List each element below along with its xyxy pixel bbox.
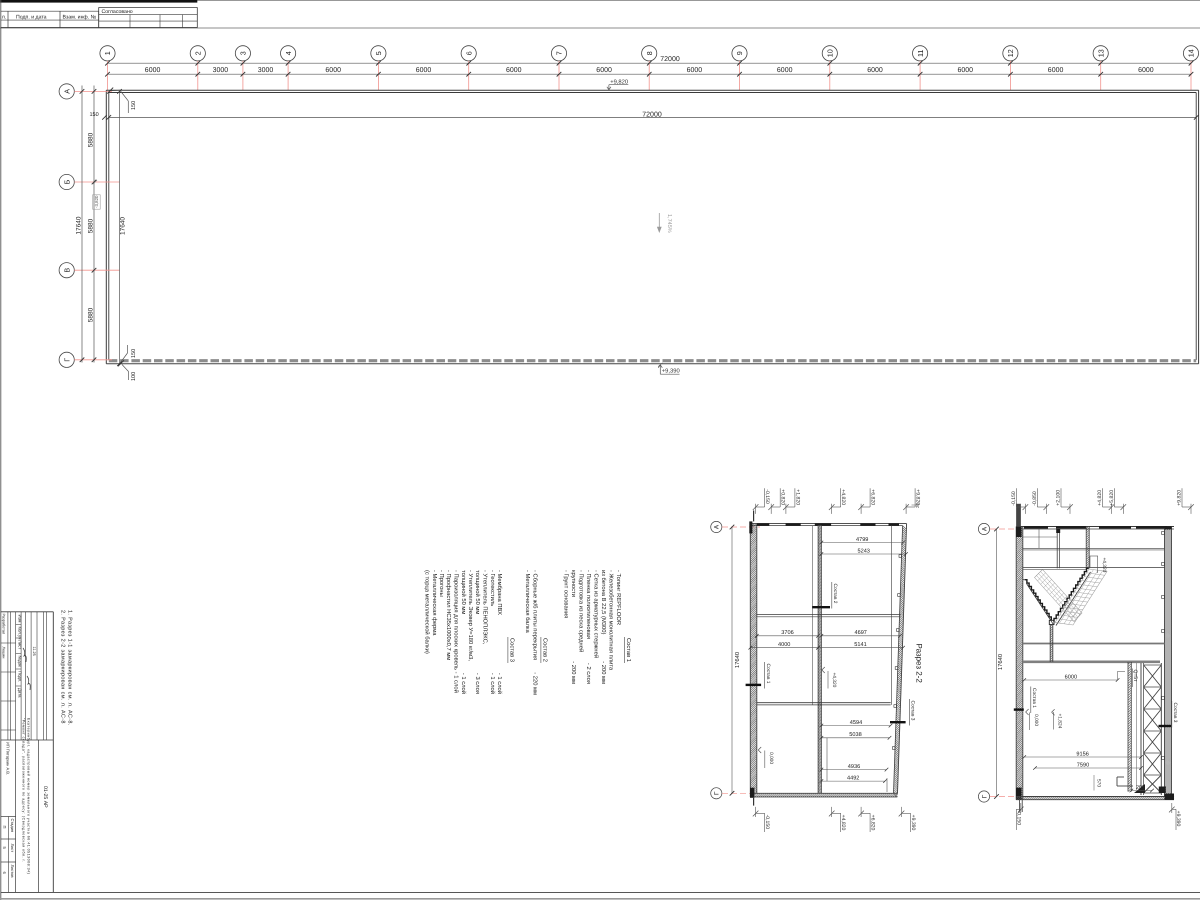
svg-text:17640: 17640 [997,654,1004,670]
svg-text:20: 20 [915,503,920,508]
svg-text:"Ремонт склада", расположенног: "Ремонт склада", расположенного по адрес… [22,718,26,862]
svg-text:0,000: 0,000 [768,752,774,764]
svg-text:3000: 3000 [258,67,274,74]
svg-text:+4,320: +4,320 [1101,558,1107,573]
svg-text:Состав 3: Состав 3 [509,638,516,662]
svg-text:Разрез 2-2: Разрез 2-2 [915,644,924,684]
svg-text:17640: 17640 [76,216,83,234]
svg-text:1. Разрез 1-1 замаркирован см.: 1. Разрез 1-1 замаркирован см. л. АС-8. [67,610,73,726]
svg-text:Согласовано: Согласовано [102,9,133,15]
svg-text:Г: Г [981,794,988,798]
svg-text:Изм: Изм [17,615,22,623]
svg-text:5880: 5880 [88,218,95,233]
svg-text:5880: 5880 [88,307,95,322]
svg-text:10: 10 [826,49,835,57]
svg-text:- Сетка из арматурных стержней: - Сетка из арматурных стержней [593,570,600,658]
svg-text:6000: 6000 [958,67,974,74]
svg-text:7: 7 [555,51,564,55]
svg-text:-0,150: -0,150 [1016,811,1022,826]
svg-text:А: А [714,524,721,529]
svg-text:4936: 4936 [848,764,860,770]
svg-text:Г: Г [714,791,721,795]
svg-text:1: 1 [103,51,112,55]
svg-text:-0,150: -0,150 [1011,491,1017,506]
svg-text:Лист: Лист [17,640,22,649]
svg-text:- Топинг REPFLOOR: - Топинг REPFLOOR [615,570,622,625]
svg-text:-0,150: -0,150 [764,489,770,504]
svg-text:+1,820: +1,820 [794,489,800,505]
svg-text:+4,320: +4,320 [831,673,837,688]
svg-text:Лист: Лист [10,844,15,853]
svg-text:П: П [2,826,7,829]
svg-text:- Пленка полиэтиленовая: - Пленка полиэтиленовая [585,570,591,639]
svg-text:- Мембрана ПВХ: - Мембрана ПВХ [496,570,503,615]
svg-text:1,745%: 1,745% [666,214,672,233]
svg-text:Лешин: Лешин [2,647,6,659]
svg-text:+6,820: +6,820 [870,815,876,831]
svg-text:+9,390: +9,390 [1175,811,1181,827]
svg-text:72000: 72000 [660,56,680,63]
svg-text:5038: 5038 [849,732,861,738]
svg-text:150: 150 [90,112,99,118]
svg-text:11.25: 11.25 [32,647,36,656]
svg-text:- Грунт основания: - Грунт основания [563,570,569,618]
svg-text:- 220 мм: - 220 мм [532,672,539,695]
svg-text:570: 570 [1096,779,1102,787]
svg-text:-3,820: -3,820 [94,195,99,208]
svg-text:Б: Б [62,179,71,184]
svg-text:Г: Г [62,358,71,362]
svg-text:2: 2 [194,51,203,55]
svg-text:- Пароизоляция для плоских кро: - Пароизоляция для плоских кровель - 1 с… [453,570,460,693]
svg-text:- 200 мм: - 200 мм [570,661,577,684]
svg-text:7590: 7590 [1077,762,1089,768]
svg-text:72000: 72000 [642,112,662,119]
svg-text:150: 150 [131,101,137,110]
svg-text:- Металлическая балка: - Металлическая балка [524,570,531,634]
svg-text:6000: 6000 [1048,67,1064,74]
svg-text:4: 4 [284,51,293,55]
svg-text:+4,820: +4,820 [840,489,846,505]
svg-text:8: 8 [645,51,654,55]
svg-text:- 1 слой: - 1 слой [460,673,467,694]
svg-text:(с торца металлической балки): (с торца металлической балки) [424,570,431,654]
svg-text:- Геотекстиль: - Геотекстиль [489,570,495,606]
svg-text:- Подготовка из песка средней: - Подготовка из песка средней [578,570,585,652]
svg-text:В: В [62,268,71,273]
svg-text:л.: л. [2,15,6,21]
svg-text:Дата: Дата [17,688,22,698]
svg-text:5: 5 [374,51,383,55]
svg-text:12: 12 [1006,49,1015,57]
svg-text:01-25 АР: 01-25 АР [42,786,48,808]
svg-text:6000: 6000 [1138,67,1154,74]
svg-text:Состав 2: Состав 2 [542,638,549,662]
svg-text:+5,820: +5,820 [1109,490,1115,506]
svg-text:Состав 3: Состав 3 [910,701,916,721]
svg-text:А: А [981,526,988,531]
svg-text:6000: 6000 [506,67,522,74]
svg-text:3706: 3706 [781,630,793,636]
svg-text:2. Разрез 2-2 замаркирован см.: 2. Разрез 2-2 замаркирован см. л. АС-8 [60,610,66,724]
svg-text:+9,820: +9,820 [1177,490,1183,506]
svg-text:+9,390: +9,390 [910,815,916,831]
svg-text:17640: 17640 [734,652,741,668]
svg-text:205: 205 [1136,785,1145,791]
svg-text:6000: 6000 [325,67,341,74]
svg-text:- 2 слоя: - 2 слоя [585,663,592,684]
svg-text:Q=5т: Q=5т [1132,670,1138,683]
svg-text:6000: 6000 [777,67,793,74]
svg-text:№док: №док [17,656,22,668]
svg-text:Взам. инф. №: Взам. инф. № [63,15,97,21]
svg-text:9: 9 [735,51,744,55]
svg-text:Подп. и дата: Подп. и дата [16,15,47,21]
svg-text:6000: 6000 [867,67,883,74]
svg-text:0,000: 0,000 [1033,714,1039,726]
svg-text:Состав 1: Состав 1 [765,664,771,684]
svg-text:13: 13 [1096,49,1105,57]
svg-text:Листов: Листов [10,865,15,878]
svg-text:14: 14 [1187,49,1196,57]
svg-text:- 1 слой: - 1 слой [489,673,496,694]
svg-text:- Утеплитель ПЕНОПЛЭКС,: - Утеплитель ПЕНОПЛЭКС, [482,570,489,645]
svg-text:5243: 5243 [857,548,869,554]
svg-text:6000: 6000 [416,67,432,74]
svg-text:4697: 4697 [854,630,866,636]
svg-text:4799: 4799 [856,537,868,543]
svg-text:- 200 мм: - 200 мм [600,661,607,684]
svg-text:+0,820: +0,820 [780,489,786,505]
svg-text:4000: 4000 [778,642,790,648]
svg-text:- 1 слой: - 1 слой [496,673,503,694]
svg-text:-0,850: -0,850 [1032,491,1038,506]
svg-text:6000: 6000 [145,67,161,74]
svg-text:5141: 5141 [854,642,866,648]
svg-text:4492: 4492 [847,776,859,782]
svg-text:9156: 9156 [1076,751,1088,757]
svg-text:Состав 1: Состав 1 [625,638,632,662]
svg-text:- Металлическая ферма: - Металлическая ферма [431,570,438,636]
svg-text:+9,390: +9,390 [662,368,680,375]
svg-text:Екатеринбург, кадастровый номе: Екатеринбург, кадастровый номер земельно… [27,718,31,874]
svg-text:6000: 6000 [687,67,703,74]
svg-text:- 3 слоя: - 3 слоя [474,673,481,694]
svg-text:+4,820: +4,820 [1097,490,1103,506]
svg-text:- Прогоны: - Прогоны [438,570,444,597]
svg-text:А: А [62,89,71,94]
svg-text:- Сборные ж/б плиты перекрытия: - Сборные ж/б плиты перекрытия [532,570,539,660]
svg-text:крупности: крупности [570,570,576,597]
svg-text:Состав 3: Состав 3 [1172,703,1178,723]
svg-text:- Утеплитель Эковер У=180 кг/м: - Утеплитель Эковер У=180 кг/м3, [467,570,474,661]
svg-text:100: 100 [131,372,137,381]
svg-text:Стадия: Стадия [10,819,15,833]
svg-text:150: 150 [131,349,137,358]
svg-text:17640: 17640 [120,217,127,235]
svg-text:+9,820: +9,820 [610,79,628,86]
svg-text:+6,820: +6,820 [870,489,876,505]
svg-text:3000: 3000 [213,67,229,74]
svg-text:+2,100: +2,100 [1056,490,1062,506]
svg-text:6000: 6000 [596,67,612,74]
svg-text:6: 6 [464,51,473,55]
svg-text:Разработал: Разработал [2,614,6,635]
svg-text:толщиной 50 мм: толщиной 50 мм [474,570,481,614]
svg-text:Кол.уч: Кол.уч [17,627,22,640]
svg-text:- Профнастил НС35х1000х0,7 мм: - Профнастил НС35х1000х0,7 мм [445,570,452,660]
svg-text:из бетона В 22,5 (М300): из бетона В 22,5 (М300) [600,570,607,634]
svg-text:Состав 1: Состав 1 [1031,688,1037,708]
svg-text:+9,820: +9,820 [915,489,921,505]
svg-text:Состав 2: Состав 2 [832,584,838,604]
svg-text:4594: 4594 [850,720,862,726]
svg-text:Подп.: Подп. [17,671,22,682]
svg-text:+1,824: +1,824 [1057,714,1063,729]
svg-text:11: 11 [916,50,925,57]
svg-text:- Железобетонная монолитная пл: - Железобетонная монолитная плита [608,570,615,671]
svg-text:-0,150: -0,150 [764,815,770,830]
svg-text:ИП Пятаркин А.В.: ИП Пятаркин А.В. [6,742,11,775]
svg-text:3: 3 [239,51,248,55]
svg-text:6000: 6000 [1065,674,1077,680]
svg-text:толщиной 50 мм: толщиной 50 мм [460,570,467,614]
svg-text:5880: 5880 [88,132,95,147]
svg-text:+4,820: +4,820 [840,815,846,831]
